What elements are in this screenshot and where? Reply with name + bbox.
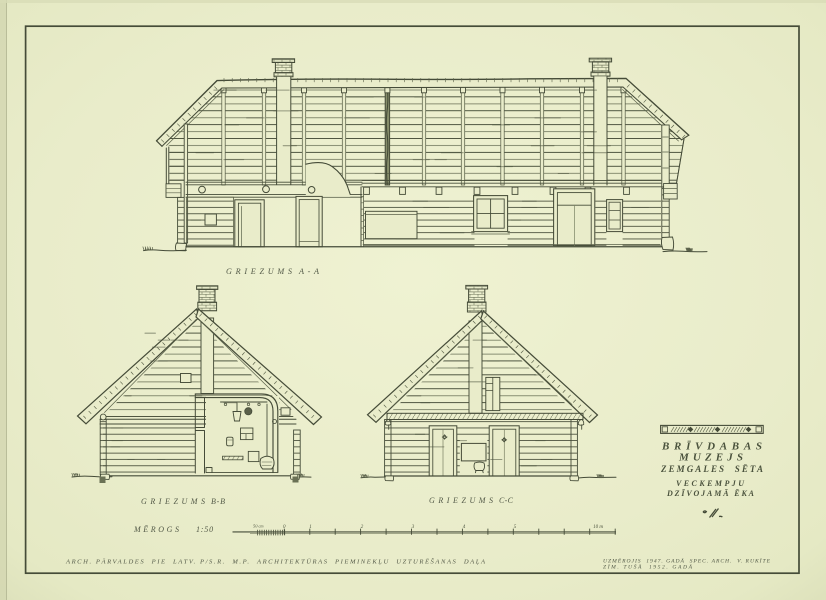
svg-text:ARCH. PĀRVALDES PIE LATV. P/: ARCH. PĀRVALDES PIE LATV. P/S.R. M.P. AR…	[65, 558, 486, 566]
svg-text:C-C: C-C	[499, 496, 514, 505]
svg-text:GRIEZUMS: GRIEZUMS	[226, 267, 292, 276]
svg-text:GRIEZUMS: GRIEZUMS	[141, 497, 205, 506]
svg-text:1: 1	[309, 525, 312, 530]
svg-text:UZMĒROJIS 1947. GADĀ SPEC. A: UZMĒROJIS 1947. GADĀ SPEC. ARCH. V. RUKĪ…	[603, 558, 771, 565]
svg-text:DZĪVOJAMĀ ĒKA: DZĪVOJAMĀ ĒKA	[666, 489, 755, 498]
svg-text:GRIEZUMS: GRIEZUMS	[429, 496, 493, 505]
svg-text:A-A: A-A	[298, 267, 320, 276]
svg-text:VECKEMPJU: VECKEMPJU	[676, 479, 745, 488]
svg-text:MĒROGS: MĒROGS	[133, 525, 182, 534]
svg-text:50 cm: 50 cm	[253, 524, 264, 529]
svg-text:1:50: 1:50	[196, 525, 214, 534]
svg-text:B-B: B-B	[211, 497, 225, 506]
svg-text:10 m: 10 m	[593, 525, 603, 530]
